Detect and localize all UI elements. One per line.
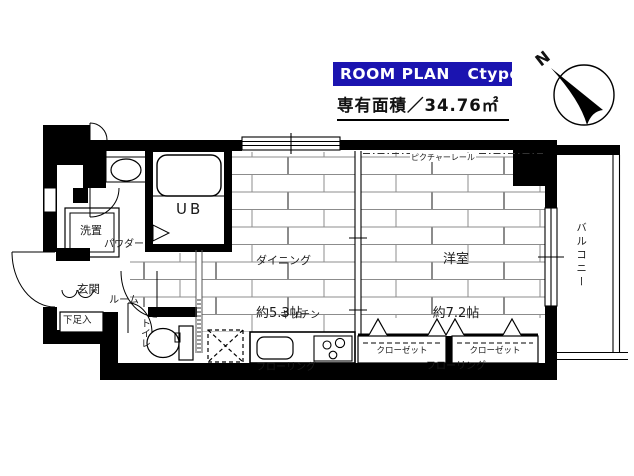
label-dining-name: ダイニング <box>256 255 316 268</box>
floor-plan-page: ROOM PLAN Ctype 専有面積／34.76㎡ N <box>0 0 634 476</box>
label-unit-bath: UB <box>176 201 203 218</box>
label-bedroom-floor: フローリング <box>424 361 488 373</box>
stove <box>314 336 352 361</box>
label-closet-left: クローゼット <box>360 347 444 357</box>
washbasin <box>106 150 147 182</box>
label-shoe-cabinet: 下足入 <box>63 316 92 327</box>
label-picture-rail: ピクチャーレール <box>410 153 476 162</box>
label-bedroom: 洋室 約7.2帖 フローリング <box>424 216 488 410</box>
label-bedroom-name: 洋室 <box>424 253 488 268</box>
label-entrance: 玄関 <box>77 283 100 296</box>
label-dining-floor: フローリング <box>256 362 316 374</box>
balcony-railing <box>557 155 628 360</box>
refrigerator-space <box>208 330 243 362</box>
label-toilet: トイレ <box>138 318 150 366</box>
label-kitchen: キッチン <box>280 310 320 322</box>
label-powder-room-line1: パウダー <box>96 239 152 251</box>
pipe-space-door <box>44 188 56 212</box>
dining-window <box>242 133 340 154</box>
label-balcony: バルコニー <box>575 222 587 302</box>
label-washer-space: 洗置 <box>80 225 102 238</box>
hall-sliding-door <box>196 250 202 353</box>
label-powder-room-line2: ルーム <box>96 295 152 307</box>
toilet-fixture <box>147 326 193 360</box>
label-bedroom-size: 約7.2帖 <box>424 307 488 322</box>
label-closet-right: クローゼット <box>454 347 536 357</box>
